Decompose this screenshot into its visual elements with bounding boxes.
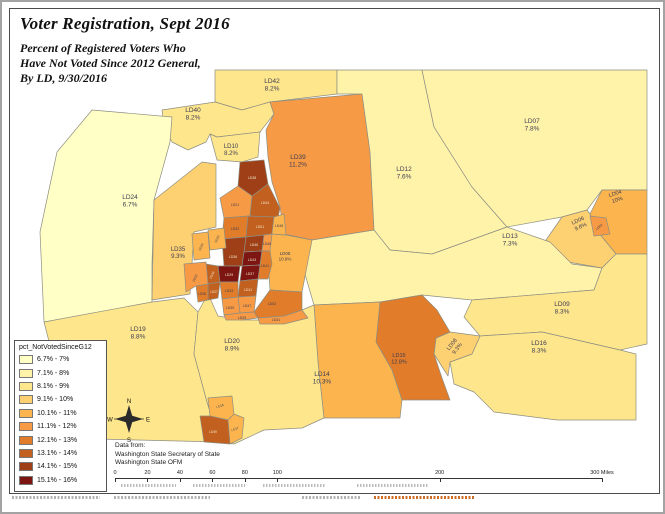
- district-LD38-label: LD38: [248, 176, 256, 180]
- fine-print-credit: [12, 496, 100, 499]
- district-LD35-label: LD359.3%: [171, 247, 186, 260]
- legend-range-label: 8.1% - 9%: [37, 383, 69, 390]
- map-subtitle-line-3: By LD, 9/30/2016: [20, 71, 260, 86]
- scale-tick-label: 20: [144, 470, 150, 476]
- scale-tick-label: 0: [113, 470, 116, 476]
- compass-north-label: N: [127, 399, 131, 405]
- district-LD39-label: LD3911.2%: [289, 154, 307, 169]
- legend-swatch: [19, 436, 33, 445]
- district-LD11-label: LD11: [244, 288, 252, 292]
- legend-row: 6.7% - 7%: [19, 353, 106, 366]
- legend-range-label: 10.1% - 11%: [37, 410, 77, 417]
- source-line-1: Data from:: [115, 442, 220, 451]
- district-LD05-label: LD0510.9%: [279, 251, 292, 262]
- legend-swatch: [19, 369, 33, 378]
- district-LD27-label: LD27: [210, 290, 218, 294]
- scale-bar: 020406080100200300 Miles: [115, 470, 615, 490]
- legend-swatch: [19, 395, 33, 404]
- legend-row: 10.1% - 11%: [19, 407, 106, 420]
- legend-swatch: [19, 355, 33, 364]
- scale-tick: [277, 478, 278, 482]
- district-LD16-label: LD168.3%: [531, 340, 547, 355]
- district-LD15-label: LD1512.8%: [391, 353, 407, 366]
- district-LD40-label: LD408.2%: [185, 107, 201, 122]
- district-LD31-label: LD31: [272, 318, 280, 322]
- legend-box: pct_NotVotedSinceG12 6.7% - 7%7.1% - 8%8…: [14, 340, 107, 492]
- district-LD48-label: LD48: [263, 242, 271, 246]
- legend-row: 15.1% - 16%: [19, 474, 106, 487]
- legend-range-label: 14.1% - 15%: [37, 463, 77, 470]
- district-LD47-label: LD47: [243, 304, 251, 308]
- source-line-3: Washington State OFM: [115, 459, 220, 468]
- legend-range-label: 13.1% - 14%: [37, 450, 77, 457]
- districts-layer: [40, 70, 647, 444]
- legend-swatch: [19, 476, 33, 485]
- legend-row: 12.1% - 13%: [19, 433, 106, 446]
- district-LD14-label: LD1410.3%: [313, 371, 332, 386]
- district-LD46-label: LD46: [250, 243, 258, 247]
- district-LD09-label: LD098.3%: [554, 301, 570, 316]
- legend-range-label: 6.7% - 7%: [37, 356, 69, 363]
- legend-swatch: [19, 449, 33, 458]
- map-subtitle-line-2: Have Not Voted Since 2012 General,: [20, 56, 260, 71]
- district-LD02-label: LD02: [268, 302, 276, 306]
- district-LD21-label: LD21: [231, 203, 239, 207]
- district-LD25-label: LD25: [238, 316, 246, 320]
- district-LD12-label: LD127.6%: [396, 166, 412, 181]
- scale-tick-label: 200: [435, 470, 444, 476]
- district-LD24-label: LD246.7%: [122, 194, 138, 209]
- scale-tick: [147, 478, 148, 482]
- district-LD44-label: LD44: [261, 201, 269, 205]
- scale-fine-print: [193, 484, 245, 487]
- scale-tick-label: 60: [209, 470, 215, 476]
- district-LD28-label: LD28: [198, 292, 206, 296]
- district-LD19-label: LD198.8%: [130, 326, 146, 341]
- scale-bar-line: [115, 478, 602, 479]
- district-LD05-region: [268, 234, 312, 292]
- legend-range-label: 9.1% - 10%: [37, 396, 73, 403]
- scale-fine-print: [263, 484, 325, 487]
- map-document: LD428.2%LD408.2%LD108.2%LD3911.2%LD127.6…: [0, 0, 665, 514]
- legend-range-label: 7.1% - 8%: [37, 370, 69, 377]
- scale-tick: [212, 478, 213, 482]
- map-subtitle-line-1: Percent of Registered Voters Who: [20, 41, 260, 56]
- district-LD42-label: LD428.2%: [264, 78, 280, 93]
- title-block: Voter Registration, Sept 2016 Percent of…: [20, 14, 260, 86]
- legend-row: 9.1% - 10%: [19, 393, 106, 406]
- legend-swatch: [19, 409, 33, 418]
- district-LD36-label: LD36: [229, 255, 237, 259]
- scale-tick-label: 300 Miles: [590, 470, 614, 476]
- scale-fine-print: [121, 484, 176, 487]
- district-LD32-label: LD32: [231, 227, 239, 231]
- legend-row: 7.1% - 8%: [19, 366, 106, 379]
- district-LD10-label: LD108.2%: [224, 144, 239, 157]
- legend-range-label: 12.1% - 13%: [37, 437, 77, 444]
- district-LD49-label: LD49: [209, 430, 217, 434]
- legend-swatch: [19, 462, 33, 471]
- scale-fine-print: [357, 484, 429, 487]
- legend-range-label: 11.1% - 12%: [37, 423, 77, 430]
- scale-tick: [245, 478, 246, 482]
- district-LD33-label: LD33: [225, 289, 233, 293]
- scale-tick-label: 40: [177, 470, 183, 476]
- legend-row: 14.1% - 15%: [19, 460, 106, 473]
- district-LD41-label: LD41: [261, 264, 269, 268]
- district-LD37-label: LD37: [246, 272, 254, 276]
- scale-tick-label: 80: [242, 470, 248, 476]
- source-line-2: Washington State Secretary of State: [115, 451, 220, 460]
- legend-rows: 6.7% - 7%7.1% - 8%8.1% - 9%9.1% - 10%10.…: [19, 353, 106, 487]
- district-LD13-label: LD137.3%: [502, 233, 518, 248]
- legend-row: 8.1% - 9%: [19, 380, 106, 393]
- legend-range-label: 15.1% - 16%: [37, 477, 77, 484]
- legend-row: 11.1% - 12%: [19, 420, 106, 433]
- scale-tick: [180, 478, 181, 482]
- district-LD30-label: LD30: [226, 306, 234, 310]
- district-LD07-label: LD077.8%: [524, 118, 540, 133]
- data-source-note: Data from: Washington State Secretary of…: [115, 442, 220, 468]
- legend-swatch: [19, 382, 33, 391]
- compass-east-label: E: [146, 418, 150, 424]
- scale-tick: [115, 478, 116, 482]
- scale-tick-label: 100: [273, 470, 282, 476]
- scale-tick: [440, 478, 441, 482]
- compass-west-label: W: [107, 418, 113, 424]
- legend-swatch: [19, 422, 33, 431]
- fine-print-credit: [302, 496, 360, 499]
- district-LD01-label: LD01: [256, 225, 264, 229]
- district-LD45-label: LD45: [275, 224, 283, 228]
- legend-title: pct_NotVotedSinceG12: [19, 344, 106, 351]
- legend-row: 13.1% - 14%: [19, 447, 106, 460]
- district-LD43-label: LD43: [248, 258, 256, 262]
- fine-print-credit: [114, 496, 210, 499]
- fine-print-author: [374, 496, 474, 499]
- map-title: Voter Registration, Sept 2016: [20, 14, 260, 34]
- district-LD20-label: LD208.9%: [224, 338, 240, 353]
- district-LD29-label: LD29: [225, 273, 233, 277]
- scale-tick: [602, 478, 603, 482]
